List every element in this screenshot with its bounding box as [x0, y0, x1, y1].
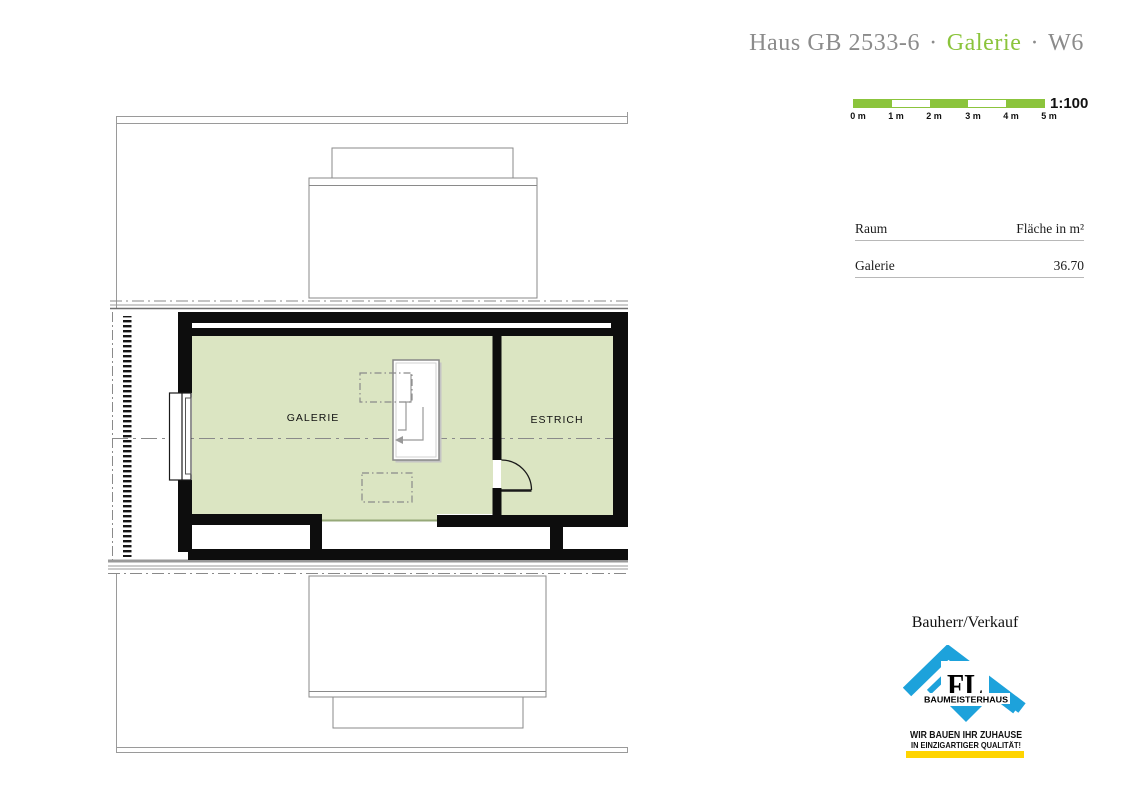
scale-segment — [854, 100, 892, 107]
title-prefix: Haus GB 2533-6 — [749, 30, 920, 56]
page: GALERIE ESTRICH Haus GB 2533-6·Galerie·W… — [0, 0, 1123, 794]
title-separator-2: · — [1031, 30, 1040, 56]
room-label-estrich: ESTRICH — [530, 414, 583, 426]
eaves-band-bottom — [108, 561, 628, 574]
wall-top-channel — [192, 323, 611, 328]
dormer-top — [309, 148, 537, 298]
area-table-col-area: Fläche in m² — [1016, 221, 1084, 237]
scale-tick-label-5: 5 m — [1041, 111, 1057, 121]
scale-tick-label-2: 2 m — [926, 111, 942, 121]
title-suffix: W6 — [1048, 30, 1084, 56]
area-table-header-row: Raum Fläche in m² — [855, 221, 1084, 241]
wall-parapet-band — [188, 549, 628, 560]
window-left — [170, 393, 192, 480]
scale-tick-label-1: 1 m — [888, 111, 904, 121]
area-row-value: 36.70 — [1054, 258, 1084, 274]
scale-tick-label-4: 4 m — [1003, 111, 1019, 121]
dormer-bottom — [309, 576, 546, 728]
scale-tick-label-3: 3 m — [965, 111, 981, 121]
area-table: Raum Fläche in m² Galerie 36.70 — [855, 221, 1084, 278]
wall-right — [613, 336, 628, 527]
stair — [393, 360, 442, 463]
scale-ratio: 1:100 — [1050, 95, 1088, 112]
scale-tick-label-0: 0 m — [850, 111, 866, 121]
scale-segment — [968, 100, 1006, 107]
area-table-col-room: Raum — [855, 221, 887, 237]
gallery-void-strip — [322, 514, 437, 520]
logo-slogan-line2: IN EINZIGARTIGER QUALITÄT! — [911, 740, 1021, 750]
stair-outline — [393, 360, 439, 460]
room-label-galerie: GALERIE — [287, 412, 340, 424]
wall-bottom-left — [178, 514, 322, 525]
title-highlight: Galerie — [947, 30, 1022, 56]
scale-bar — [853, 99, 1045, 108]
logo-triangle-icon — [950, 706, 982, 722]
wall-left-upper — [178, 336, 192, 393]
wall-partition-stub — [493, 488, 502, 515]
wall-partition — [493, 336, 502, 460]
fl-baumeisterhaus-logo: FL BAUMEISTERHAUS WIR BAUEN IHR ZUHAUSE … — [903, 645, 1027, 760]
room-galerie-fill — [192, 335, 493, 514]
logo-yellow-bar — [906, 751, 1024, 758]
logo-brand-text: BAUMEISTERHAUS — [924, 696, 1009, 705]
scale-segment — [1006, 100, 1044, 107]
scale-segment — [930, 100, 968, 107]
title-separator: · — [929, 30, 938, 56]
eaves-band-top — [110, 301, 628, 309]
scale-segment — [892, 100, 930, 107]
wall-bottom-stub-right — [550, 520, 563, 550]
insulation-hatch — [123, 316, 132, 557]
area-row-room: Galerie — [855, 258, 895, 274]
page-title: Haus GB 2533-6·Galerie·W6 — [749, 30, 1084, 57]
footer-heading: Bauherr/Verkauf — [898, 614, 1032, 632]
area-table-row: Galerie 36.70 — [855, 258, 1084, 278]
wall-bottom-right — [437, 515, 628, 527]
